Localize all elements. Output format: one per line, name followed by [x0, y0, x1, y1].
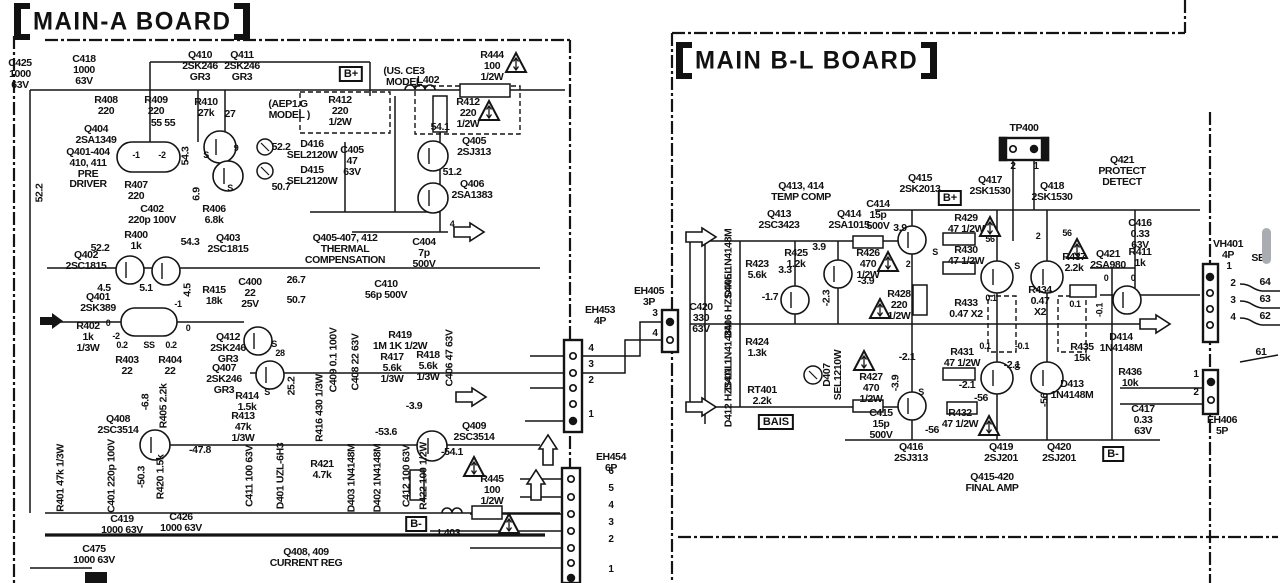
- component-label: R410 27k: [194, 97, 218, 119]
- component-label: 2: [1230, 279, 1235, 289]
- component-label: 55 55: [151, 118, 175, 129]
- component-label: C408 22 63V: [351, 334, 362, 391]
- component-label: S: [264, 388, 270, 397]
- component-label: Q404 2SA1349: [76, 124, 117, 146]
- component-label: Q408, 409 CURRENT REG: [270, 547, 343, 569]
- component-label: R421 4.7k: [310, 459, 334, 481]
- component-label: 0: [1104, 274, 1109, 283]
- component-label: R437 2.2k: [1062, 252, 1086, 274]
- component-label: Q419 2SJ201: [984, 442, 1018, 464]
- component-label: R424 1.3k: [745, 337, 769, 359]
- component-label: 2: [906, 260, 911, 269]
- component-label: 5: [608, 484, 613, 494]
- component-label: Q414 2SA1015: [829, 209, 870, 231]
- component-label: R434 0.47 X2: [1028, 285, 1052, 317]
- component-label: 1: [1226, 262, 1231, 272]
- component-label: R416 430 1/3W: [315, 374, 326, 442]
- component-label: D412 HZS4ALL: [724, 357, 735, 427]
- component-label: R418 5.6k 1/3W: [416, 350, 440, 382]
- component-label: 51.2: [443, 167, 462, 178]
- component-label: 2: [1193, 388, 1198, 398]
- component-label: R431 47 1/2W: [944, 347, 980, 369]
- rail-badge: B-: [1102, 446, 1124, 462]
- component-label: -47.8: [189, 445, 211, 456]
- component-label: C409 0.1 100V: [329, 328, 340, 393]
- component-label: 52.2: [272, 142, 291, 153]
- component-label: -54.1: [441, 447, 463, 458]
- component-label: D403 1N4148M: [347, 444, 358, 513]
- component-label: C405 47 63V: [340, 145, 364, 177]
- component-label: 64: [1260, 277, 1271, 288]
- component-label: R445 100 1/2W: [480, 474, 504, 506]
- component-label: Q418 2SK1530: [1032, 181, 1073, 203]
- component-label: 27: [225, 109, 236, 120]
- rail-badge: B-: [405, 516, 427, 532]
- component-label: C410 56p 500V: [365, 279, 407, 301]
- component-label: -3.9: [406, 401, 423, 412]
- component-label: Q416 2SJ313: [894, 442, 928, 464]
- component-label: D402 1N4148M: [373, 444, 384, 513]
- component-label: Q415-420 FINAL AMP: [966, 472, 1019, 494]
- component-label: Q403 2SC1815: [208, 233, 249, 255]
- connector-pins: [568, 146, 1215, 582]
- component-label: Q415 2SK2013: [900, 173, 941, 195]
- component-label: R426 470 1/2W: [856, 248, 880, 280]
- component-label: 54.3: [181, 237, 200, 248]
- component-label: Q410 2SK246 GR3: [182, 50, 218, 82]
- component-label: S: [1014, 262, 1020, 271]
- component-label: C425 1000 63V: [8, 58, 32, 90]
- component-label: 1: [1033, 162, 1038, 172]
- component-label: R432 47 1/2W: [942, 408, 978, 430]
- component-label: C402 220p 100V: [128, 204, 176, 226]
- component-label: Q420 2SJ201: [1042, 442, 1076, 464]
- component-label: R400 1k: [124, 230, 148, 252]
- component-label: 6: [608, 467, 613, 477]
- component-label: R406 6.8k: [202, 204, 226, 226]
- component-label: R403 22: [115, 355, 139, 377]
- component-label: 0: [106, 319, 111, 328]
- component-label: 2: [1010, 162, 1015, 172]
- component-label: C415 15p 500V: [869, 408, 893, 440]
- component-label: R422 100 1/2W: [419, 442, 430, 510]
- component-label: TP400: [1010, 123, 1039, 134]
- component-label: R413 47k 1/3W: [231, 411, 255, 443]
- component-label: L402: [417, 75, 439, 86]
- component-label: C475 1000 63V: [73, 544, 115, 566]
- component-label: Q412 2SK246 GR3: [210, 332, 246, 364]
- left-bracket-icon: [14, 3, 30, 40]
- board-title-main-a: MAIN-A BOARD: [14, 3, 250, 40]
- component-label: Q413, 414 TEMP COMP: [771, 181, 831, 203]
- component-label: R423 5.6k: [745, 259, 769, 281]
- component-label: R420 1.5k: [156, 455, 167, 500]
- component-label: -0.1: [1095, 303, 1104, 317]
- component-label: Q413 2SC3423: [759, 209, 800, 231]
- component-label: C414 15p 500V: [866, 199, 890, 231]
- component-label: R412 220 1/2W: [456, 97, 480, 129]
- component-label: -50.3: [137, 466, 148, 488]
- component-label: 4: [1230, 313, 1235, 323]
- component-label: 2: [588, 376, 593, 386]
- component-label: -56: [1040, 393, 1051, 407]
- component-label: R408 220: [94, 95, 118, 117]
- component-label: R428 220 1/2W: [887, 289, 911, 321]
- component-label: R402 1k 1/3W: [76, 321, 100, 353]
- component-label: -56: [925, 425, 939, 436]
- component-label: 1: [588, 410, 593, 420]
- component-label: R433 0.47 X2: [949, 298, 982, 320]
- component-label: 28: [275, 349, 284, 358]
- component-label: R409 220: [144, 95, 168, 117]
- component-label: 3: [608, 518, 613, 528]
- component-label: 4: [608, 501, 613, 511]
- component-label: C412 100 63V: [402, 445, 413, 507]
- component-label: R430 47 1/2W: [948, 245, 984, 267]
- component-label: D413 1N4148M: [1051, 379, 1094, 401]
- component-label: C418 1000 63V: [72, 54, 96, 86]
- component-label: C404 7p 500V: [412, 237, 436, 269]
- component-label: 56: [985, 235, 994, 244]
- component-label: VH401 4P: [1213, 239, 1243, 261]
- component-label: -3.9: [891, 375, 902, 392]
- component-label: Q411 2SK246 GR3: [224, 50, 260, 82]
- component-label: 4: [652, 329, 657, 339]
- board-title-main-b-l: MAIN B-L BOARD: [676, 42, 937, 79]
- component-label: 9: [234, 144, 239, 153]
- component-label: EH406 5P: [1207, 415, 1237, 437]
- component-label: 52.2: [35, 184, 46, 203]
- rail-badge: BAIS: [758, 414, 794, 430]
- bottom-connector-stub: [85, 572, 107, 583]
- component-label: (AEP1.G MODEL ): [266, 99, 310, 121]
- component-label: -0.1: [1015, 342, 1029, 351]
- component-label: 3: [652, 309, 657, 319]
- component-label: C417 0.33 63V: [1131, 404, 1155, 436]
- schematic-page: MAIN-A BOARD MAIN B-L BOARD C425 1000 63…: [0, 0, 1280, 583]
- component-label: 4: [588, 344, 593, 354]
- component-label: 0.2: [116, 341, 127, 350]
- rail-badge: B+: [339, 66, 363, 82]
- component-label: Q402 2SC1815: [66, 250, 107, 272]
- component-label: R405 2.2k: [159, 384, 170, 429]
- component-label: -1.7: [762, 292, 779, 303]
- component-label: R407 220: [124, 180, 148, 202]
- component-label: 2: [1036, 232, 1041, 241]
- component-label: C401 220p 100V: [107, 439, 118, 513]
- component-label: R412 220 1/2W: [328, 95, 352, 127]
- component-label: 26.7: [287, 275, 306, 286]
- component-label: Q421 PROTECT DETECT: [1098, 155, 1145, 187]
- component-label: Q405-407, 412 THERMAL COMPENSATION: [305, 233, 385, 265]
- component-label: D401 UZL-6H3: [276, 443, 287, 509]
- board-title-text: MAIN B-L BOARD: [695, 46, 918, 75]
- component-label: 3: [1230, 296, 1235, 306]
- component-label: 4.5: [183, 283, 194, 296]
- component-label: C416 0.33 63V: [1128, 218, 1152, 250]
- component-label: S: [227, 184, 233, 193]
- rail-badge: B+: [938, 190, 962, 206]
- component-label: Q405 2SJ313: [457, 136, 491, 158]
- component-label: 62: [1260, 311, 1271, 322]
- component-label: D416 SEL2120W: [287, 139, 338, 161]
- component-label: EH453 4P: [585, 305, 615, 327]
- component-label: Q409 2SC3514: [454, 421, 495, 443]
- component-label: -2: [158, 151, 165, 160]
- component-label: C411 100 63V: [245, 445, 256, 507]
- component-label: 50.7: [272, 182, 291, 193]
- component-label: -56: [974, 393, 988, 404]
- component-label: 61: [1256, 347, 1267, 358]
- scrollbar-thumb[interactable]: [1262, 228, 1271, 264]
- component-label: S: [918, 388, 924, 397]
- component-label: C400 22 25V: [238, 277, 262, 309]
- component-label: -2.1: [899, 352, 916, 363]
- component-label: Q421 2SA980: [1090, 249, 1126, 271]
- component-label: R427 470 1/2W: [859, 372, 883, 404]
- component-label: -6.8: [141, 394, 152, 411]
- component-label: SS: [143, 341, 154, 350]
- component-label: EH405 3P: [634, 286, 664, 308]
- component-label: 25.2: [287, 377, 298, 396]
- component-label: R429 47 1/2W: [948, 213, 984, 235]
- component-label: 0.2: [165, 341, 176, 350]
- component-label: S: [203, 151, 209, 160]
- component-label: RT401 2.2k: [747, 385, 777, 407]
- component-label: -2.1: [959, 380, 976, 391]
- component-label: R404 22: [158, 355, 182, 377]
- component-label: Q408 2SC3514: [98, 414, 139, 436]
- component-label: 0: [186, 324, 191, 333]
- component-label: L403: [438, 528, 460, 539]
- component-label: Q406 2SA1383: [452, 179, 493, 201]
- left-bracket-icon: [676, 42, 692, 79]
- component-label: Q401 2SK389: [80, 292, 116, 314]
- component-label: 0.1: [1069, 300, 1080, 309]
- component-label: 5.1: [139, 283, 152, 294]
- component-label: 1: [1193, 370, 1198, 380]
- component-label: 2: [608, 535, 613, 545]
- component-label: R435 15k: [1070, 342, 1094, 364]
- component-label: R436 10k: [1118, 367, 1142, 389]
- component-label: D415 SEL2120W: [287, 165, 338, 187]
- component-label: 0: [1131, 274, 1136, 283]
- component-label: Q401-404 410, 411 PRE DRIVER: [66, 147, 110, 190]
- component-label: 50.7: [287, 295, 306, 306]
- component-label: C426 1000 63V: [160, 512, 202, 534]
- component-label: D407 SEL1210W: [822, 350, 844, 401]
- component-label: 3: [588, 360, 593, 370]
- component-label: C419 1000 63V: [101, 514, 143, 536]
- component-label: 63: [1260, 294, 1271, 305]
- component-label: R401 47k 1/3W: [56, 444, 67, 512]
- component-label: R417 5.6k 1/3W: [380, 352, 404, 384]
- component-label: 54.1: [431, 122, 450, 133]
- component-label: 6.9: [192, 187, 203, 200]
- component-label: 0.1: [985, 294, 996, 303]
- component-label: -1: [132, 151, 139, 160]
- component-label: C406 47 63V: [445, 330, 456, 387]
- component-label: R415 18k: [202, 285, 226, 307]
- component-label: -2.3: [822, 290, 833, 307]
- component-label: 3.9: [893, 223, 906, 234]
- component-label: Q417 2SK1530: [970, 175, 1011, 197]
- component-label: -1: [174, 300, 181, 309]
- component-label: S: [1014, 363, 1020, 372]
- board-title-text: MAIN-A BOARD: [33, 7, 231, 36]
- component-label: S: [932, 248, 938, 257]
- component-label: D414 1N4148M: [1100, 332, 1143, 354]
- right-bracket-icon: [234, 3, 250, 40]
- component-label: R444 100 1/2W: [480, 50, 504, 82]
- component-label: 0.1: [979, 342, 990, 351]
- component-label: -53.6: [375, 427, 397, 438]
- right-bracket-icon: [921, 42, 937, 79]
- component-label: 4: [450, 220, 455, 229]
- component-label: C420 330 63V: [689, 302, 713, 334]
- component-label: 56: [1062, 229, 1071, 238]
- component-label: R425 1.2k: [784, 248, 808, 270]
- component-label: 54.3: [181, 147, 192, 166]
- component-label: 1: [608, 565, 613, 575]
- component-label: 3.9: [812, 242, 825, 253]
